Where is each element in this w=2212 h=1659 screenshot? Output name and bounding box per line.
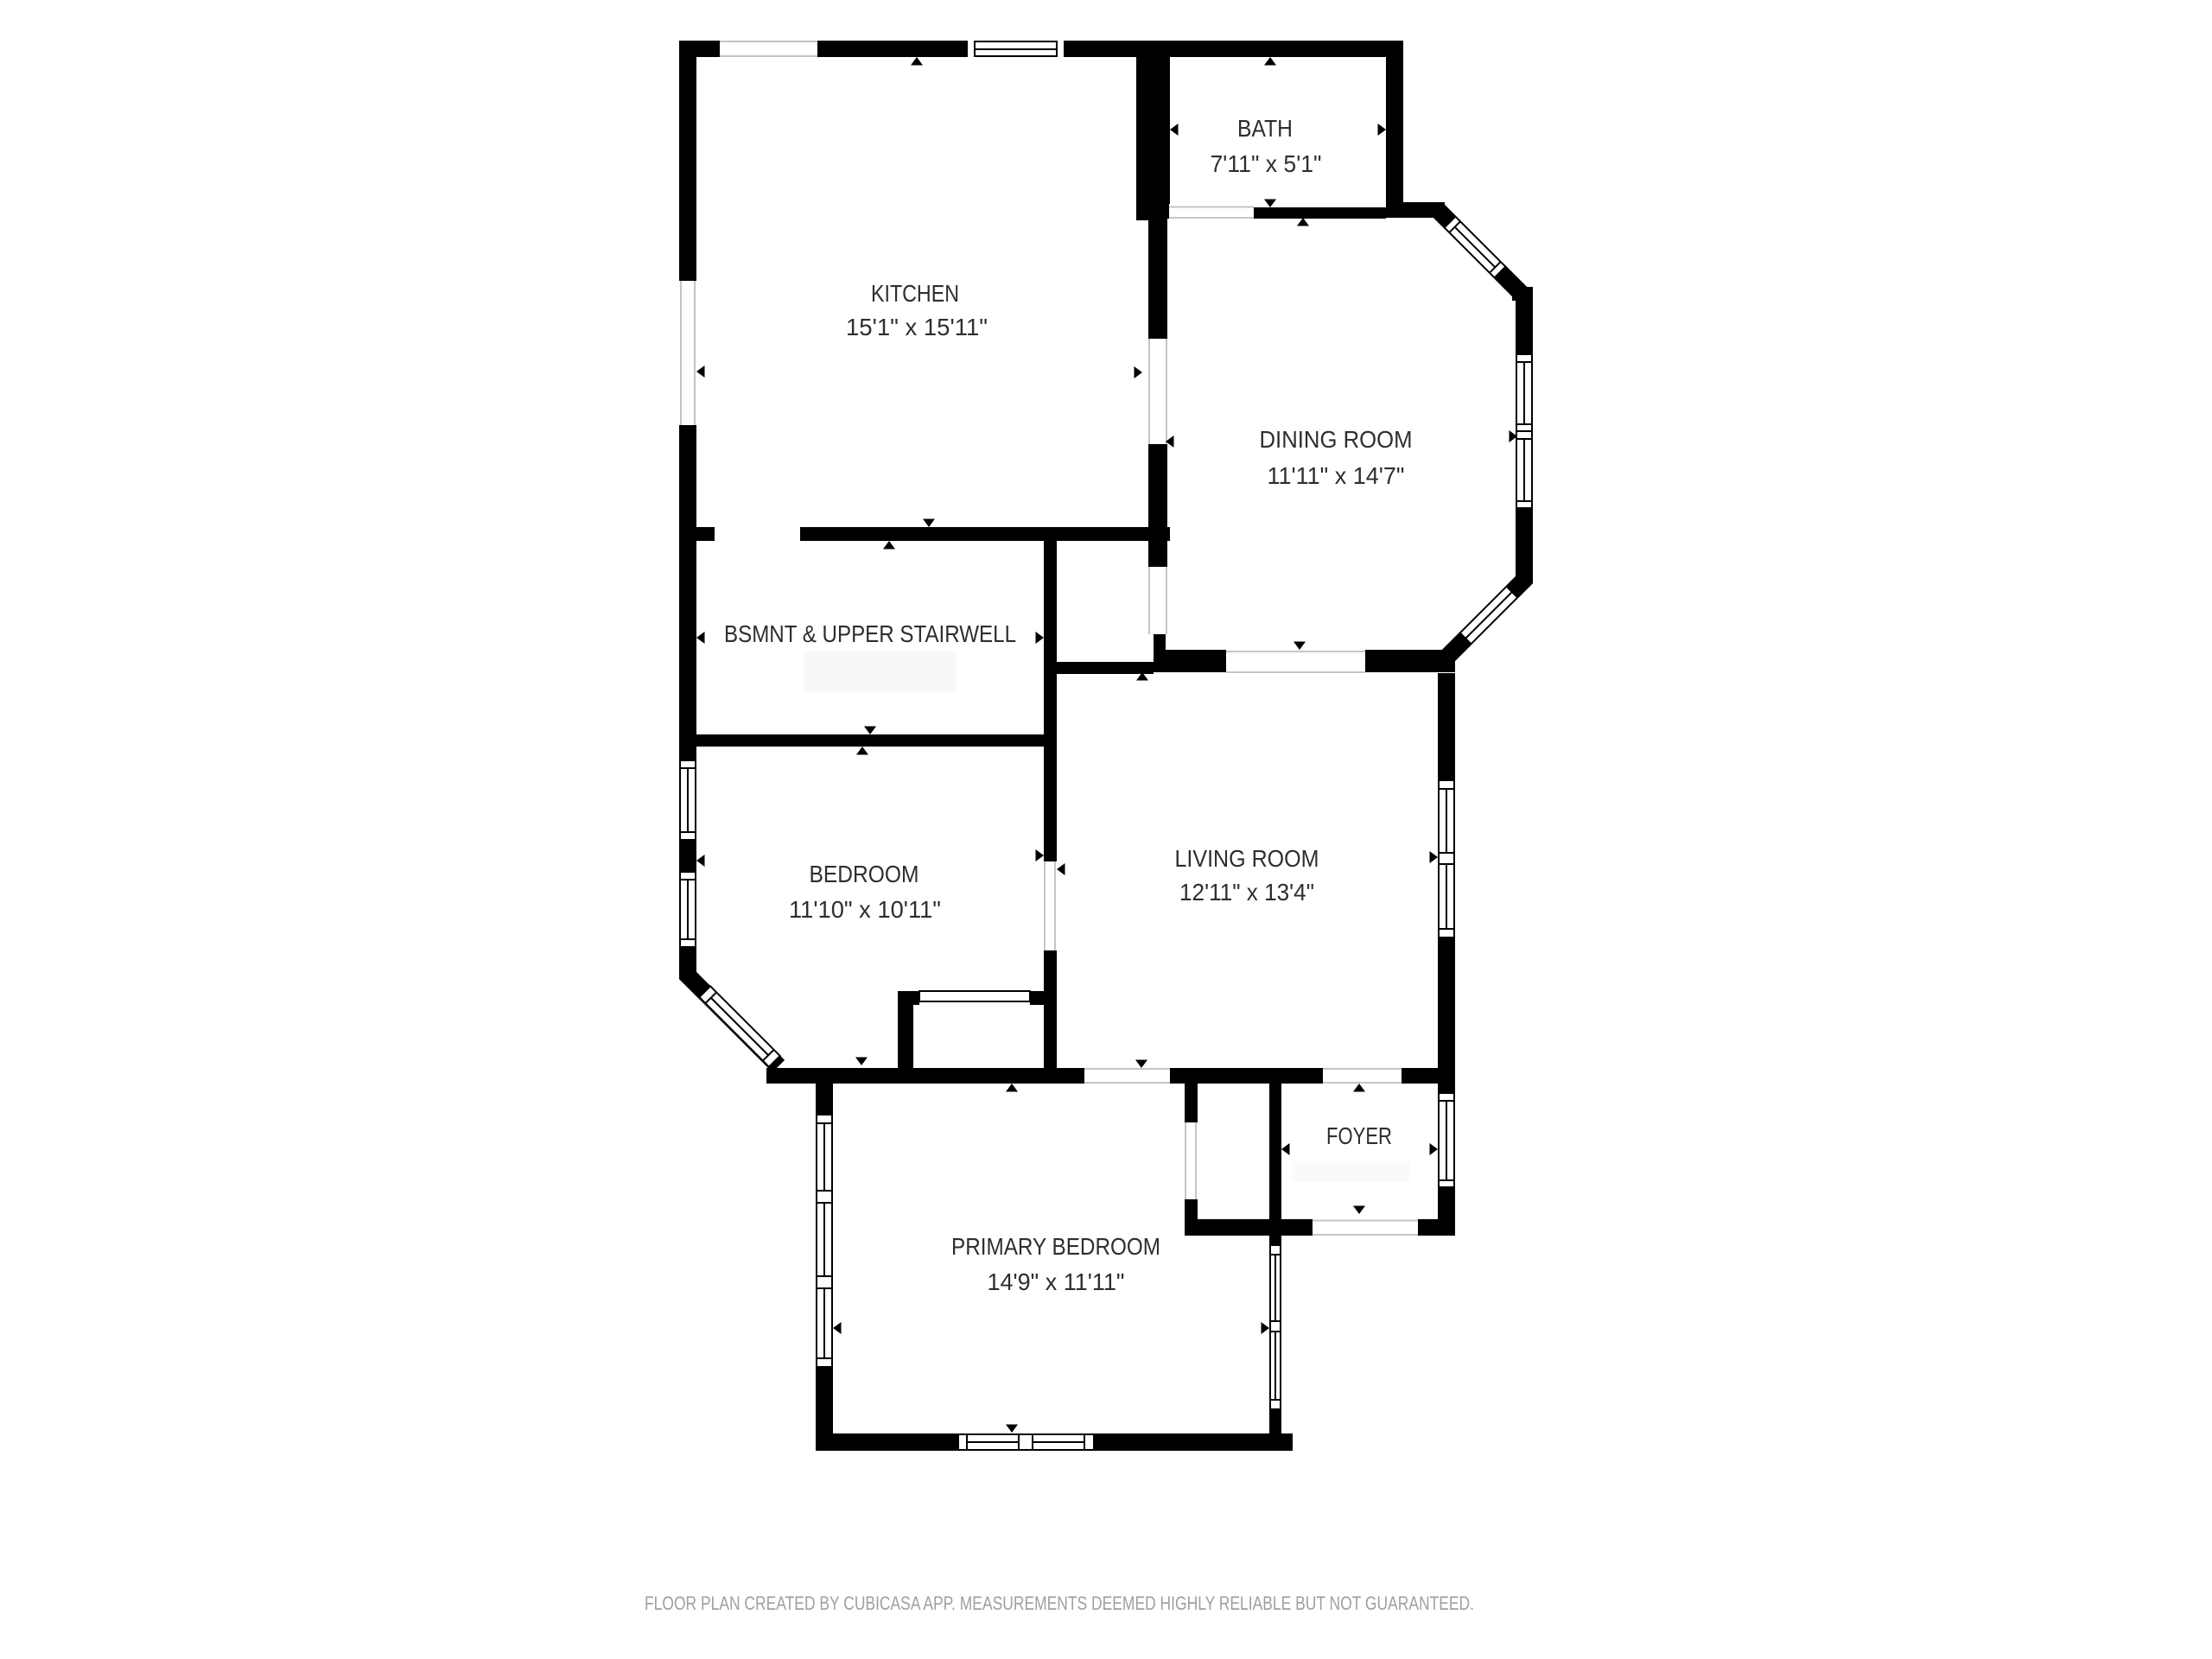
svg-text:FLOOR PLAN CREATED BY CUBICASA: FLOOR PLAN CREATED BY CUBICASA APP. MEAS… bbox=[645, 1592, 1474, 1614]
svg-text:12'11" x 13'4": 12'11" x 13'4" bbox=[1179, 879, 1314, 906]
svg-text:14'9" x 11'11": 14'9" x 11'11" bbox=[988, 1268, 1125, 1295]
svg-text:BATH: BATH bbox=[1237, 115, 1293, 142]
svg-text:KITCHEN: KITCHEN bbox=[871, 280, 959, 307]
svg-text:PRIMARY BEDROOM: PRIMARY BEDROOM bbox=[951, 1233, 1160, 1260]
svg-text:FOYER: FOYER bbox=[1326, 1122, 1392, 1149]
svg-text:11'10" x 10'11": 11'10" x 10'11" bbox=[789, 896, 941, 923]
svg-text:BSMNT & UPPER STAIRWELL: BSMNT & UPPER STAIRWELL bbox=[724, 620, 1016, 647]
svg-text:DINING ROOM: DINING ROOM bbox=[1260, 426, 1413, 453]
svg-text:15'1" x 15'11": 15'1" x 15'11" bbox=[846, 314, 988, 340]
svg-text:7'11" x 5'1": 7'11" x 5'1" bbox=[1211, 150, 1322, 177]
svg-text:11'11" x 14'7": 11'11" x 14'7" bbox=[1268, 462, 1405, 489]
svg-text:BEDROOM: BEDROOM bbox=[810, 861, 919, 887]
svg-text:LIVING ROOM: LIVING ROOM bbox=[1175, 845, 1319, 872]
